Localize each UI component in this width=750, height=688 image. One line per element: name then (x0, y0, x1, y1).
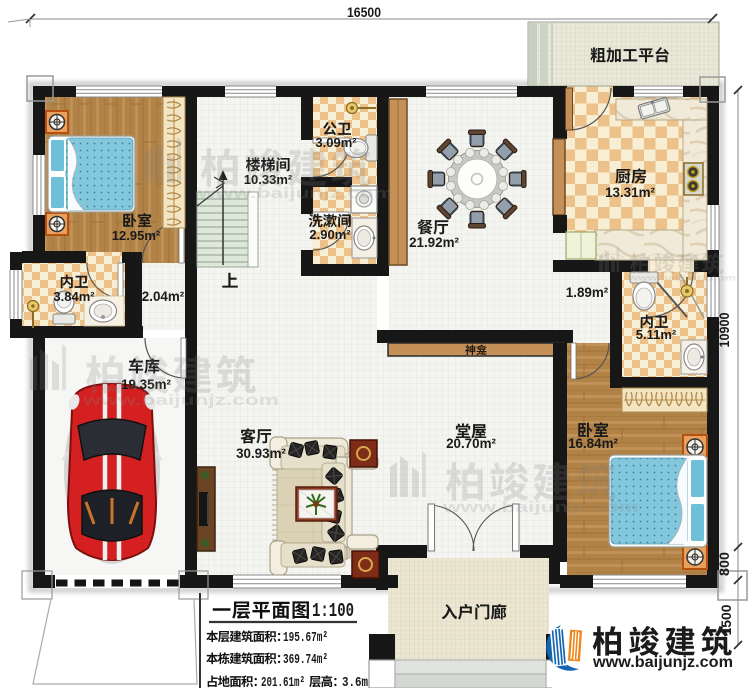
svg-text:3.6m: 3.6m (342, 676, 368, 688)
svg-text:5.11m²: 5.11m² (636, 327, 677, 342)
svg-text:10900: 10900 (717, 313, 732, 348)
svg-text:3.09m²: 3.09m² (315, 135, 357, 150)
svg-text:2.04m²: 2.04m² (142, 289, 185, 304)
svg-text:201.61m²: 201.61m² (261, 676, 305, 688)
svg-text:16.84m²: 16.84m² (568, 436, 618, 451)
svg-text:21.92m²: 21.92m² (409, 235, 459, 250)
svg-text:369.74m²: 369.74m² (283, 653, 328, 668)
svg-text:12.95m²: 12.95m² (112, 228, 161, 243)
svg-text:13.31m²: 13.31m² (605, 185, 655, 200)
svg-text:www.baijunjz.com: www.baijunjz.com (441, 500, 639, 516)
svg-text:www.baijunjz.com: www.baijunjz.com (627, 273, 736, 282)
svg-text:16500: 16500 (347, 5, 381, 20)
svg-text:195.67m²: 195.67m² (283, 631, 328, 646)
svg-text:1:100: 1:100 (312, 600, 354, 622)
svg-text:30.93m²: 30.93m² (236, 446, 286, 461)
svg-text:800: 800 (717, 552, 732, 576)
svg-text:www.baijunjz.com: www.baijunjz.com (196, 186, 394, 202)
svg-text:20.70m²: 20.70m² (446, 436, 496, 451)
svg-text:www.baijunjz.com: www.baijunjz.com (81, 393, 279, 409)
svg-text:1.89m²: 1.89m² (566, 285, 609, 300)
svg-text:2.90m²: 2.90m² (309, 227, 351, 242)
svg-text:3.84m²: 3.84m² (53, 289, 95, 304)
svg-text:www.baijunjz.com: www.baijunjz.com (592, 654, 733, 671)
